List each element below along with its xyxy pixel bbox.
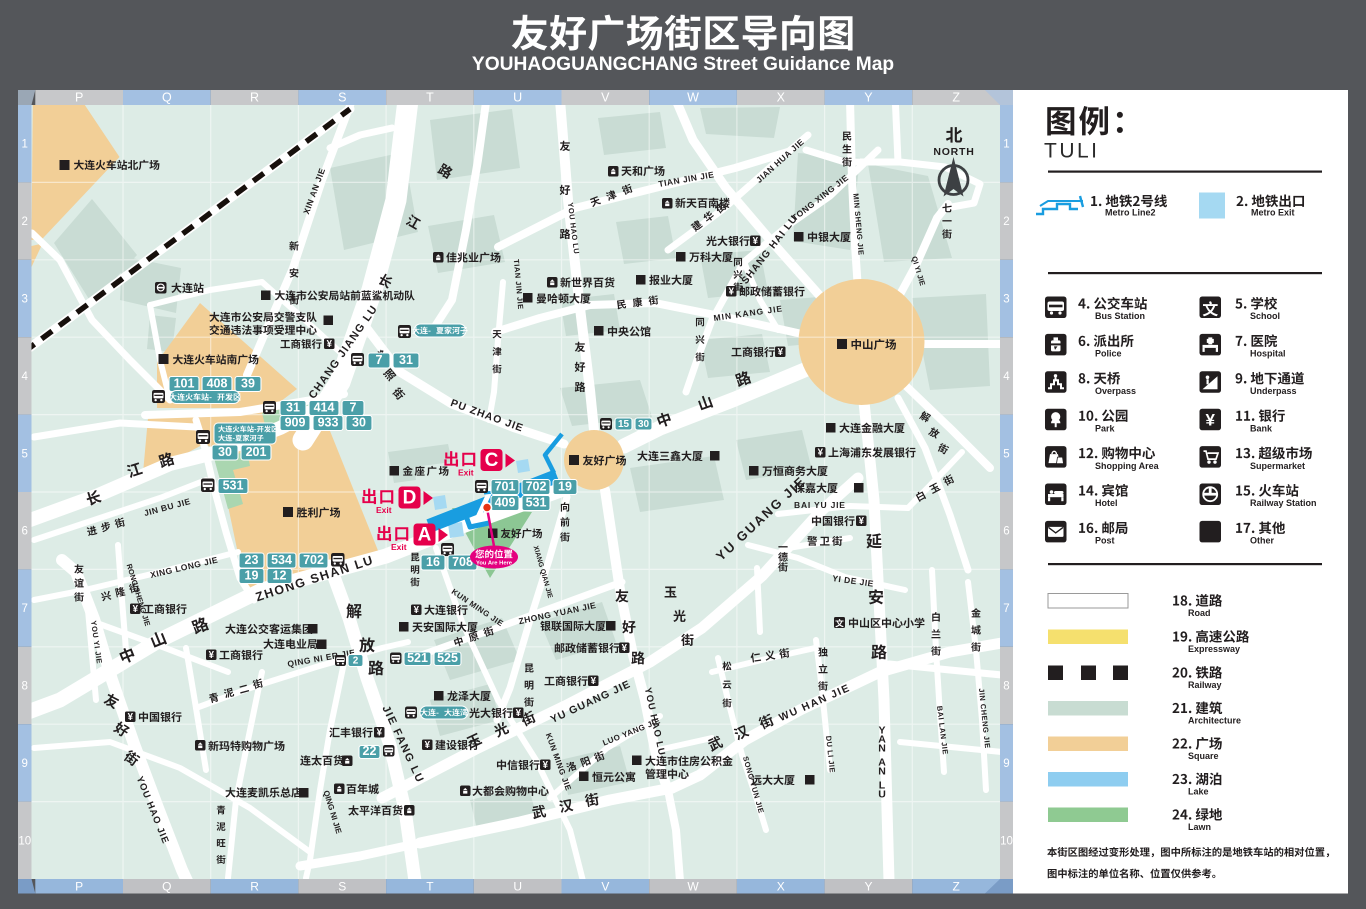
svg-text:Hotel: Hotel (1095, 498, 1118, 508)
svg-text:19: 19 (245, 569, 259, 583)
svg-text:7: 7 (22, 603, 28, 615)
svg-text:16: 16 (426, 555, 440, 569)
svg-text:Square: Square (1188, 751, 1219, 761)
svg-text:Shopping Area: Shopping Area (1095, 461, 1160, 471)
svg-text:P: P (75, 880, 83, 894)
svg-text:Z: Z (952, 91, 960, 105)
svg-text:30: 30 (638, 419, 650, 430)
svg-text:708: 708 (452, 555, 473, 569)
svg-text:Exit: Exit (391, 542, 407, 552)
svg-text:BAI YU JIE: BAI YU JIE (794, 500, 846, 510)
svg-text:Railway: Railway (1188, 680, 1222, 690)
svg-text:531: 531 (223, 479, 244, 493)
svg-text:10: 10 (18, 835, 31, 847)
svg-text:¥: ¥ (859, 516, 865, 527)
svg-text:D: D (403, 488, 417, 509)
svg-text:Police: Police (1095, 349, 1122, 359)
svg-text:¥: ¥ (818, 448, 824, 459)
svg-text:N: N (878, 766, 886, 778)
svg-text:Q: Q (162, 91, 172, 105)
svg-text:30: 30 (218, 445, 232, 459)
svg-text:2: 2 (22, 216, 28, 228)
svg-text:Supermarket: Supermarket (1250, 461, 1305, 471)
svg-text:Y: Y (864, 880, 872, 894)
svg-text:Road: Road (1188, 608, 1211, 618)
svg-text:R: R (250, 880, 259, 894)
svg-text:X: X (777, 91, 786, 105)
svg-text:19: 19 (558, 480, 572, 494)
svg-text:534: 534 (271, 553, 292, 567)
svg-text:P: P (75, 91, 83, 105)
svg-text:521: 521 (407, 651, 428, 665)
svg-text:You Are Here: You Are Here (476, 561, 513, 567)
svg-text:Exit: Exit (458, 467, 474, 477)
svg-text:U: U (513, 91, 522, 105)
svg-text:Metro Exit: Metro Exit (1251, 208, 1295, 218)
svg-text:409: 409 (495, 496, 516, 510)
svg-text:39: 39 (241, 377, 255, 391)
svg-text:531: 531 (526, 496, 547, 510)
svg-text:¥: ¥ (128, 712, 134, 723)
svg-text:¥: ¥ (778, 347, 784, 358)
svg-text:¥: ¥ (425, 740, 431, 751)
svg-text:6: 6 (1003, 526, 1009, 538)
svg-text:525: 525 (437, 651, 458, 665)
svg-text:3: 3 (22, 294, 28, 306)
svg-text:¥: ¥ (1205, 411, 1215, 430)
svg-text:Metro Line2: Metro Line2 (1105, 208, 1156, 218)
svg-text:1: 1 (1003, 139, 1009, 151)
svg-text:909: 909 (285, 416, 306, 430)
svg-text:1: 1 (22, 139, 28, 151)
svg-text:2: 2 (353, 655, 359, 666)
svg-text:¥: ¥ (591, 676, 597, 687)
svg-text:¥: ¥ (543, 760, 549, 771)
svg-text:N: N (878, 743, 886, 755)
svg-text:S: S (338, 91, 346, 105)
svg-text:414: 414 (314, 401, 335, 415)
svg-text:TULI: TULI (1044, 139, 1100, 162)
svg-text:Expressway: Expressway (1188, 644, 1240, 654)
svg-text:9: 9 (1003, 758, 1009, 770)
svg-text:408: 408 (207, 377, 228, 391)
svg-text:Lake: Lake (1188, 787, 1209, 797)
svg-text:Bus Station: Bus Station (1095, 311, 1145, 321)
svg-text:5: 5 (22, 448, 28, 460)
svg-text:701: 701 (495, 480, 516, 494)
svg-text:4: 4 (1003, 371, 1010, 383)
svg-text:6: 6 (22, 526, 28, 538)
svg-text:Z: Z (952, 880, 959, 894)
svg-text:5: 5 (1003, 448, 1009, 460)
svg-text:C: C (485, 450, 499, 471)
svg-text:¥: ¥ (327, 339, 333, 350)
svg-text:NORTH: NORTH (933, 146, 974, 158)
svg-text:Lawn: Lawn (1188, 822, 1211, 832)
svg-text:31: 31 (399, 353, 413, 367)
svg-text:7: 7 (350, 401, 357, 415)
svg-text:T: T (426, 880, 434, 894)
svg-text:¥: ¥ (414, 605, 420, 616)
svg-text:A: A (418, 525, 432, 546)
svg-text:T: T (426, 91, 434, 105)
svg-text:7: 7 (376, 353, 383, 367)
svg-text:22: 22 (363, 744, 377, 758)
svg-text:School: School (1250, 311, 1280, 321)
svg-text:Park: Park (1095, 423, 1116, 433)
svg-text:X: X (777, 880, 785, 894)
svg-text:12: 12 (273, 569, 287, 583)
svg-text:2: 2 (1003, 216, 1009, 228)
svg-text:3: 3 (1003, 294, 1009, 306)
svg-text:¥: ¥ (753, 236, 759, 247)
svg-text:¥: ¥ (622, 643, 628, 654)
svg-text:Underpass: Underpass (1250, 386, 1297, 396)
svg-text:¥: ¥ (209, 650, 215, 661)
svg-text:Post: Post (1095, 536, 1115, 546)
svg-text:30: 30 (352, 416, 366, 430)
svg-text:31: 31 (286, 401, 300, 415)
svg-text:V: V (601, 880, 609, 894)
svg-text:702: 702 (303, 553, 324, 567)
svg-text:8: 8 (22, 681, 28, 693)
svg-text:¥: ¥ (377, 728, 383, 739)
svg-text:W: W (687, 91, 699, 105)
svg-text:Exit: Exit (376, 505, 392, 515)
svg-text:Y: Y (864, 91, 873, 105)
svg-text:4: 4 (22, 371, 29, 383)
svg-text:R: R (250, 91, 259, 105)
svg-text:U: U (878, 789, 886, 801)
svg-text:Q: Q (162, 880, 171, 894)
svg-text:9: 9 (22, 758, 28, 770)
svg-text:7: 7 (1003, 603, 1009, 615)
svg-text:201: 201 (246, 445, 267, 459)
svg-text:15: 15 (618, 419, 630, 430)
svg-text:23: 23 (245, 553, 259, 567)
svg-text:Other: Other (1250, 536, 1275, 546)
svg-text:W: W (687, 880, 699, 894)
svg-text:¥: ¥ (729, 287, 735, 298)
svg-text:U: U (513, 880, 522, 894)
svg-text:Overpass: Overpass (1095, 386, 1136, 396)
svg-text:Architecture: Architecture (1188, 716, 1241, 726)
svg-text:Railway Station: Railway Station (1250, 498, 1317, 508)
svg-text:101: 101 (174, 377, 195, 391)
svg-text:702: 702 (526, 480, 547, 494)
svg-text:10: 10 (1000, 835, 1013, 847)
svg-text:933: 933 (318, 416, 339, 430)
svg-text:S: S (338, 880, 346, 894)
svg-text:Hospital: Hospital (1250, 349, 1286, 359)
svg-text:Bank: Bank (1250, 423, 1273, 433)
svg-text:8: 8 (1003, 681, 1009, 693)
svg-text:V: V (601, 91, 610, 105)
svg-text:YOUHAOGUANGCHANG Street Guida: YOUHAOGUANGCHANG Street Guidance Map (472, 54, 894, 75)
